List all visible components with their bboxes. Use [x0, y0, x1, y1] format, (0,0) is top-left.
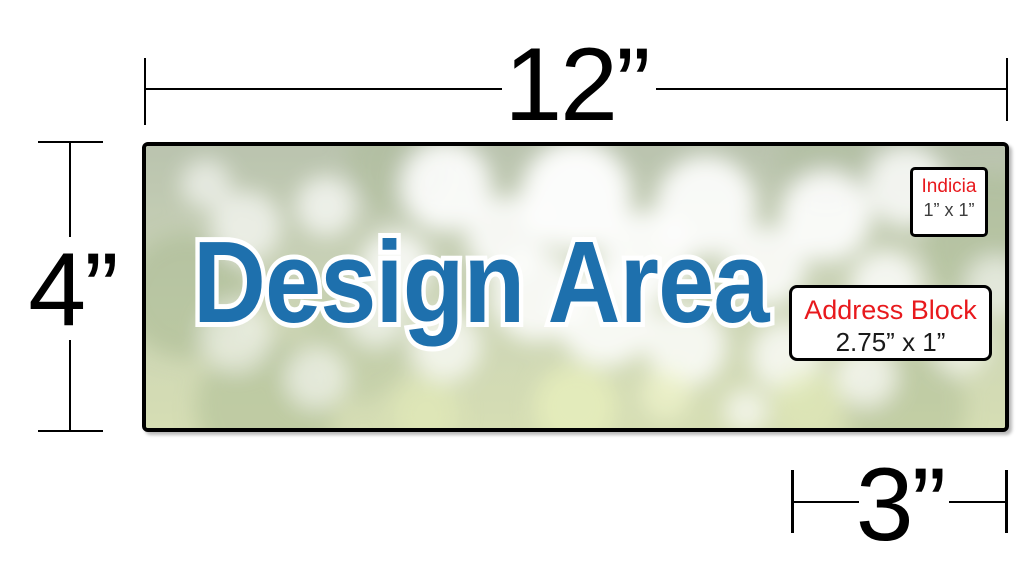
address-block-size: 2.75” x 1”	[792, 326, 989, 360]
indicia-box: Indicia 1” x 1”	[910, 167, 988, 237]
height-dimension-line-bottom	[69, 340, 71, 431]
address-block-box: Address Block 2.75” x 1”	[789, 285, 992, 361]
postcard-template-diagram: 12” 4” 3”	[0, 0, 1035, 576]
address-area-dimension-label: 3”	[792, 453, 1008, 557]
indicia-title: Indicia	[913, 176, 985, 199]
indicia-size: 1” x 1”	[913, 199, 985, 222]
width-dimension-label: 12”	[145, 33, 1008, 137]
address-block-title: Address Block	[792, 295, 989, 326]
height-dimension-line-top	[69, 143, 71, 237]
design-area-headline: Design Area	[193, 224, 769, 340]
design-area: Design Area Design Area Indicia 1” x 1” …	[142, 142, 1009, 432]
height-dimension-label: 4”	[5, 238, 140, 342]
